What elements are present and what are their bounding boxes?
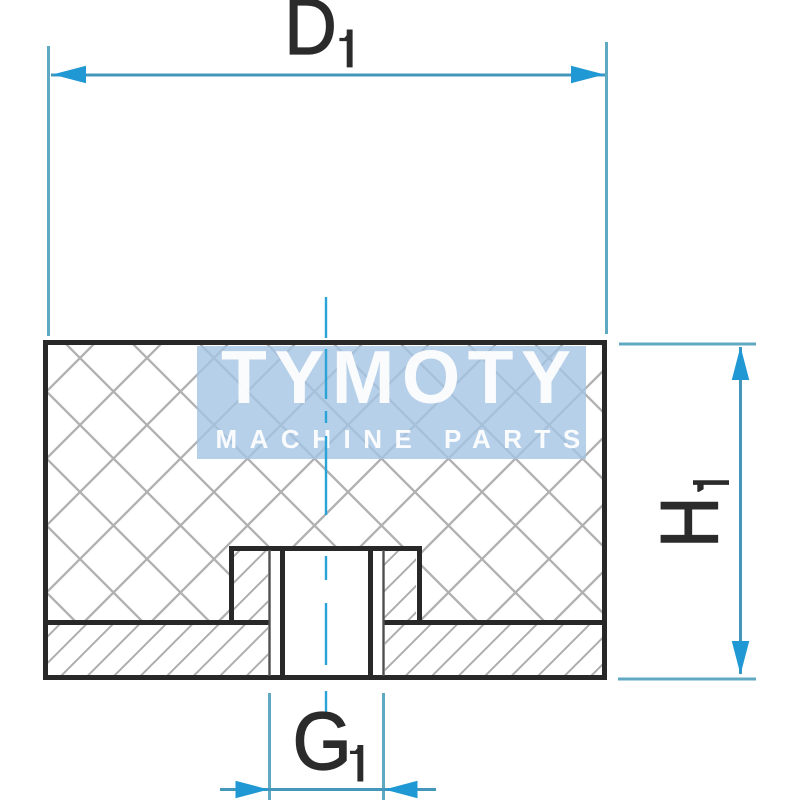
svg-text:H: H — [644, 496, 736, 548]
svg-text:MACHINE PARTS: MACHINE PARTS — [216, 424, 593, 454]
svg-text:G: G — [293, 694, 352, 786]
svg-text:D: D — [284, 0, 337, 72]
svg-text:TYMOTY: TYMOTY — [221, 335, 579, 419]
